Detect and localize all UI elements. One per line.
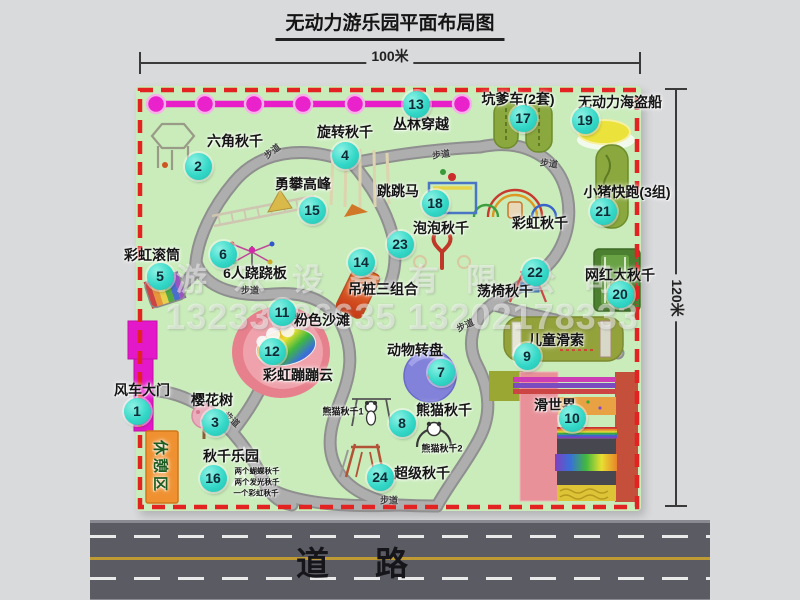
label-hexagon-swing: 六角秋千 [207, 131, 263, 151]
marker-16-swing-park: 16 [200, 465, 227, 492]
label-rainbow-swing: 彩虹秋千 [512, 213, 568, 233]
marker-8-panda-swing: 8 [389, 410, 416, 437]
label-rainbow-roller: 彩虹滚筒 [124, 245, 180, 265]
label-jumping-horse: 跳跳马 [377, 181, 419, 201]
marker-19-pirate-ship: 19 [572, 107, 599, 134]
label-rotating-swing: 旋转秋千 [317, 122, 373, 142]
marker-18-jumping-horse: 18 [422, 190, 449, 217]
label-seesaw: 6人跷跷板 [223, 263, 287, 283]
label-pink-beach: 粉色沙滩 [294, 310, 350, 330]
marker-23-bubble-swing: 23 [387, 231, 414, 258]
label-panda-swing-1: 熊猫秋千1 [322, 405, 363, 418]
footpath-label: 步道 [380, 494, 398, 507]
marker-4-rotating-swing: 4 [332, 142, 359, 169]
label-panda-swing: 熊猫秋千 [416, 400, 472, 420]
marker-5-rainbow-roller: 5 [147, 263, 174, 290]
marker-7-animal-carousel: 7 [428, 359, 455, 386]
marker-17-pit-car: 17 [510, 105, 537, 132]
label-sakura-tree: 樱花树 [191, 390, 233, 410]
marker-15-climbing-peak: 15 [299, 197, 326, 224]
marker-6-seesaw: 6 [210, 241, 237, 268]
marker-14-hanging-pile: 14 [348, 249, 375, 276]
dimension-tick-right-top [665, 88, 687, 90]
marker-1-windmill-gate: 1 [124, 398, 151, 425]
footpath-label: 步道 [539, 155, 559, 170]
label-glowing-swings: 两个发光秋千 [235, 477, 280, 488]
marker-24-super-swing: 24 [367, 464, 394, 491]
label-windmill-gate: 风车大门 [114, 380, 170, 400]
label-bubble-swing: 泡泡秋千 [413, 218, 469, 238]
marker-20-big-swing: 20 [607, 281, 634, 308]
marker-22-chair-swing: 22 [522, 259, 549, 286]
label-swing-park: 秋千乐园 [203, 446, 259, 466]
marker-21-piggy-run: 21 [590, 198, 617, 225]
label-chair-swing: 荡椅秋千 [477, 281, 533, 301]
label-super-swing: 超级秋千 [394, 463, 450, 483]
label-rainbow-cloud: 彩虹蹦蹦云 [263, 365, 333, 385]
label-climbing-peak: 勇攀高峰 [275, 174, 331, 194]
label-rest-area: 休憩区 [151, 440, 172, 494]
marker-9-children-zipline: 9 [514, 343, 541, 370]
dimension-tick-right-bottom [665, 505, 687, 507]
marker-12-rainbow-cloud: 12 [259, 338, 286, 365]
page-title: 无动力游乐园平面布局图 [275, 8, 504, 41]
road-label: 道路 [250, 537, 454, 585]
dimension-height-label: 120米 [667, 274, 687, 321]
label-animal-carousel: 动物转盘 [387, 340, 443, 360]
road: 道路 [90, 520, 710, 600]
marker-3-sakura-tree: 3 [202, 409, 229, 436]
label-panda-swing-2: 熊猫秋千2 [421, 442, 462, 455]
label-butterfly-swings: 两个蝴蝶秋千 [235, 466, 280, 477]
dimension-width-label: 100米 [366, 46, 413, 66]
marker-13-jungle-crossing: 13 [403, 91, 430, 118]
park-layout-screenshot: 无动力游乐园平面布局图 100米 120米 [0, 0, 800, 600]
marker-10-slide-world: 10 [559, 405, 586, 432]
label-hanging-pile: 吊桩三组合 [348, 279, 418, 299]
marker-11-pink-beach: 11 [269, 299, 296, 326]
dimension-tick-top-left [139, 52, 141, 74]
footpath-label: 步道 [431, 146, 451, 161]
marker-2-hexagon-swing: 2 [185, 153, 212, 180]
dimension-tick-top-right [639, 52, 641, 74]
slide-world-icon [489, 371, 638, 502]
label-rainbow-swing-one: 一个彩虹秋千 [234, 488, 279, 499]
footpath-label: 步道 [241, 284, 259, 297]
